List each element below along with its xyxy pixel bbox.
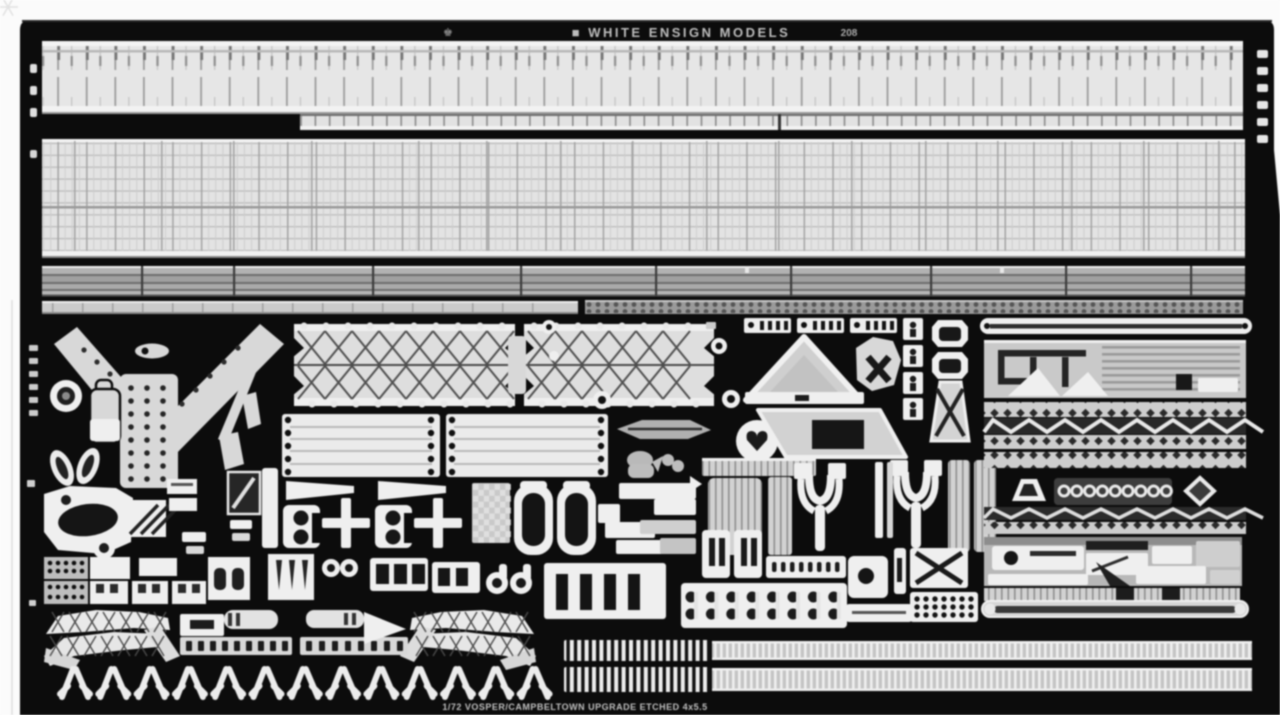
svg-text:♚: ♚: [443, 27, 453, 39]
svg-text:1/72 VOSPER/CAMPBELTOWN UPGRAD: 1/72 VOSPER/CAMPBELTOWN UPGRADE ETCHED 4…: [442, 702, 707, 712]
svg-text:■ WHITE ENSIGN MODELS: ■ WHITE ENSIGN MODELS: [572, 25, 791, 40]
svg-text:208: 208: [841, 28, 858, 39]
